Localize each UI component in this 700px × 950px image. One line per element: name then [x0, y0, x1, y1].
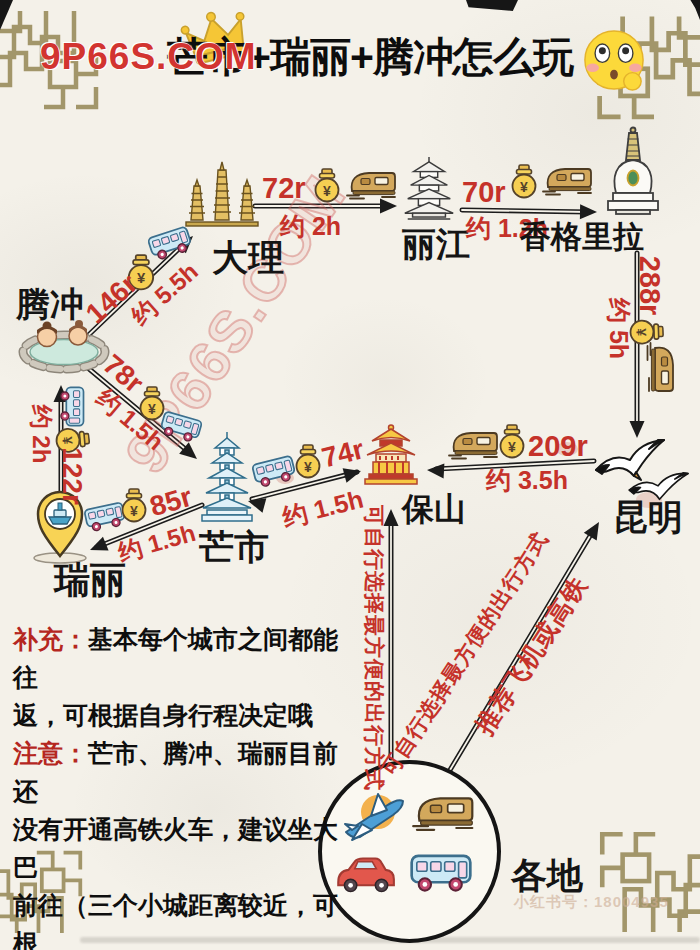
travel-route-infographic: 芒市+瑞丽+腾冲怎么玩 9P66S.COM 9P66S.COM 小红书号：180…: [0, 0, 700, 950]
mangshi-pagoda-icon: [198, 430, 256, 528]
dali-three-pagodas-icon: [182, 158, 262, 236]
corner-ornament-top-left: [0, 0, 132, 158]
baoshan-temple-icon: [360, 424, 422, 490]
city-label-ruili: 瑞丽: [35, 556, 145, 605]
supplement-text: 返，可根据自身行程决定哦: [13, 701, 313, 729]
bus-icon: [249, 451, 299, 491]
note-everywhere-baoshan: 可自行选择最方便的出行方式: [360, 505, 388, 775]
airplane-icon: [338, 784, 412, 850]
money-bag-icon: [120, 488, 148, 524]
train-icon: [412, 792, 476, 832]
supplement-label: 补充：: [13, 625, 88, 653]
price-dali-lijiang: 72r: [262, 172, 306, 205]
shangrila-stupa-icon: [600, 126, 666, 222]
duration-kunming-baoshan: 约 3.5h: [486, 464, 568, 497]
train-icon: [542, 164, 594, 196]
money-bag-icon: [510, 164, 538, 200]
price-ruili-tengchong: 122r: [56, 436, 88, 516]
money-bag-icon: [313, 168, 341, 204]
attention-label: 注意：: [13, 739, 88, 767]
price-kunming-baoshan: 209r: [528, 430, 588, 463]
city-label-mangshi: 芒市: [196, 524, 272, 571]
money-bag-icon: [294, 444, 322, 480]
corner-ornament-bottom-right: [588, 802, 700, 950]
train-icon: [448, 428, 500, 460]
attention-text: 前往（三个小城距离较近，可根: [13, 891, 338, 950]
city-label-everywhere: 各地: [502, 852, 592, 901]
money-bag-icon: [498, 424, 526, 460]
notes-block: 补充：基本每个城市之间都能往 返，可根据自身行程决定哦 注意：芒市、腾冲、瑞丽目…: [13, 620, 347, 950]
price-lijiang-shangrila: 70r: [462, 176, 506, 209]
frame-artifact: [466, 0, 518, 11]
brand-watermark: 9P66S.COM: [40, 36, 257, 78]
bus-icon: [59, 386, 88, 428]
bus-icon: [408, 850, 474, 894]
city-label-shangrila: 香格里拉: [512, 216, 652, 258]
duration-shangrila-kunming: 约 5h: [602, 289, 635, 369]
duration-dali-lijiang: 约 2h: [280, 210, 341, 243]
duration-baoshan-mangshi: 约 1.5h: [279, 483, 367, 535]
attention-text: 没有开通高铁火车，建议坐大巴: [13, 815, 338, 881]
duration-ruili-tengchong: 约 2h: [25, 399, 57, 469]
train-icon: [346, 168, 398, 200]
price-shangrila-kunming: 288r: [633, 241, 666, 331]
city-label-kunming: 昆明: [608, 494, 688, 541]
city-label-baoshan: 保山: [396, 488, 472, 532]
train-icon: [646, 342, 678, 394]
lijiang-tower-icon: [400, 154, 458, 224]
city-label-lijiang: 丽江: [396, 222, 476, 268]
kunming-seagulls-icon: [592, 436, 696, 498]
